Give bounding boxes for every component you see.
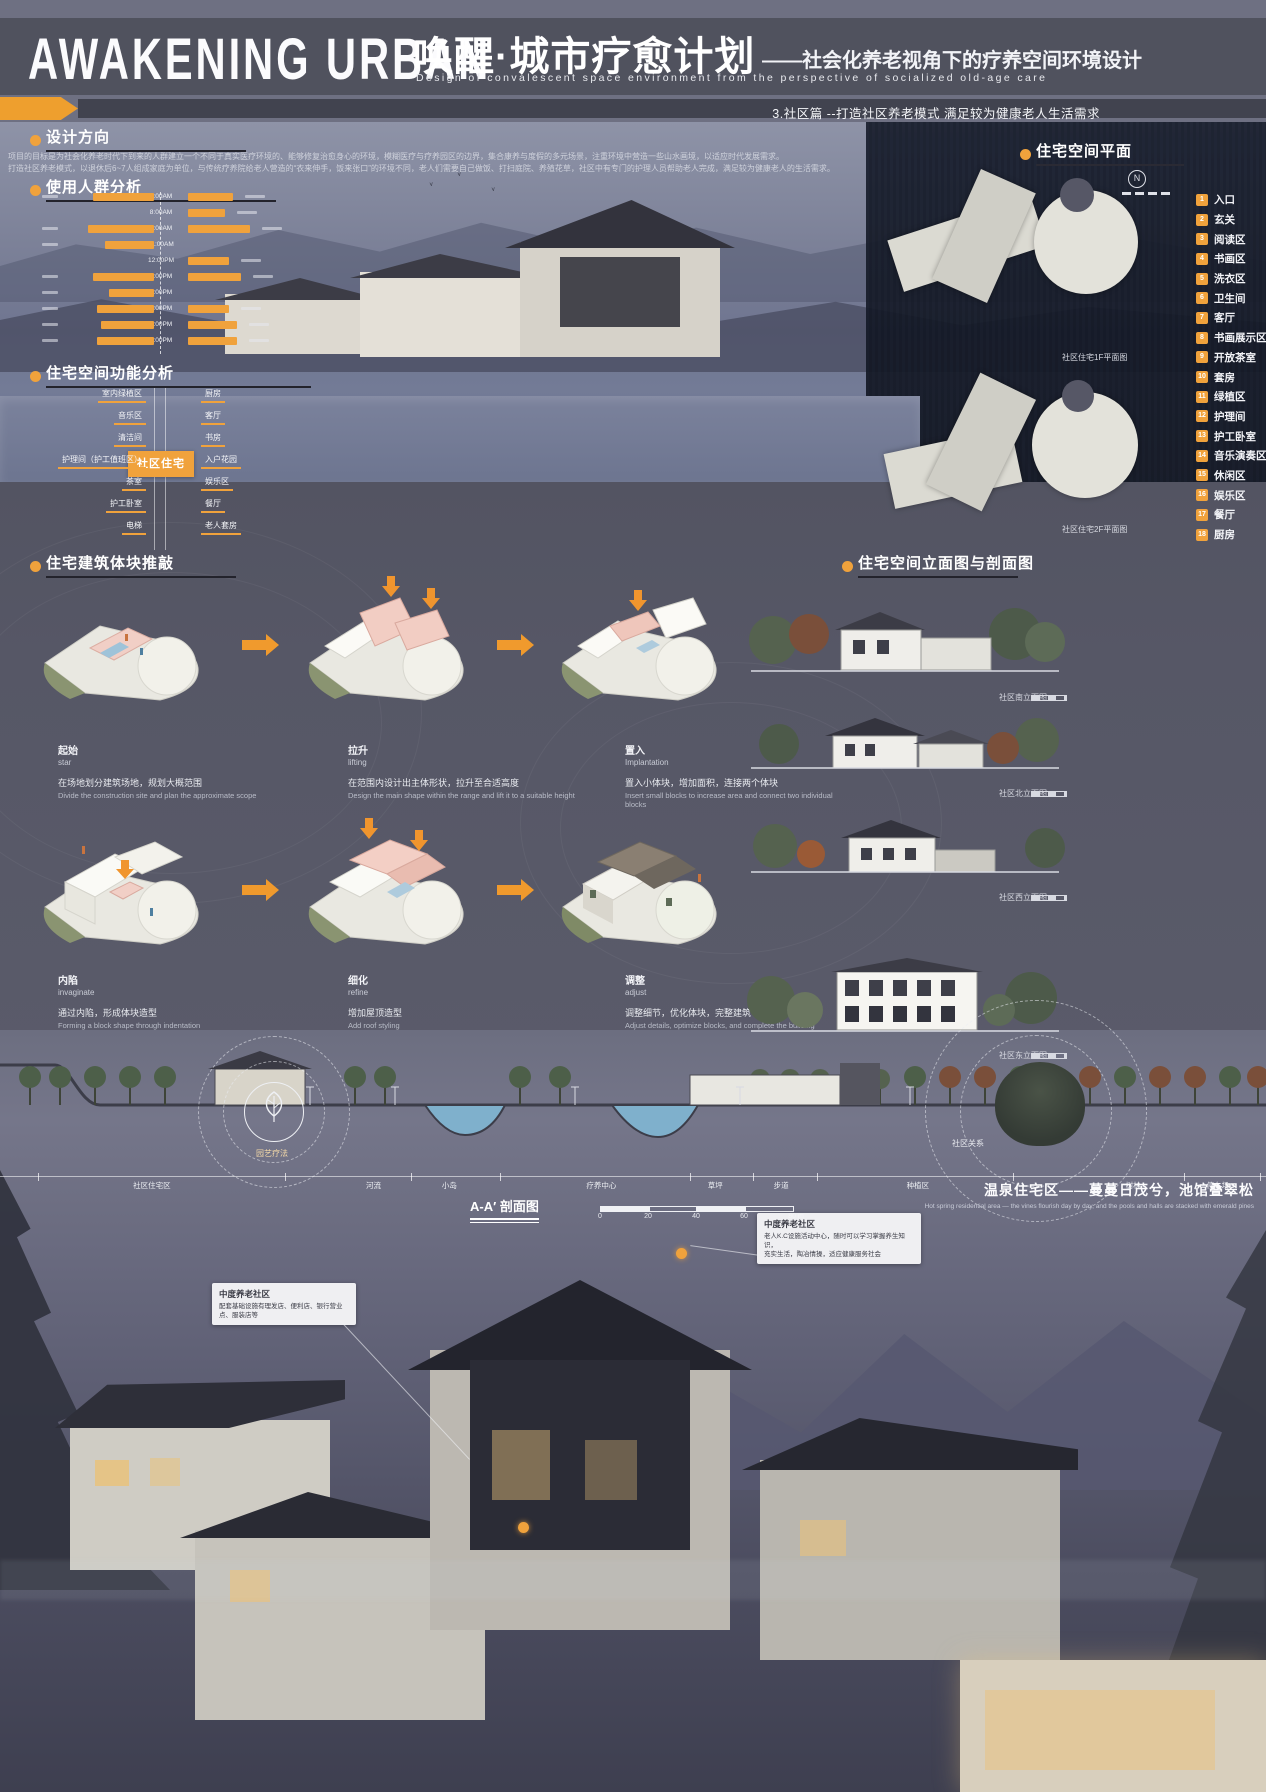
legend-label: 阅读区	[1214, 232, 1246, 247]
label-dash	[42, 323, 58, 326]
massing-step-4-label: 内陷 invaginate 通过内陷，形成体块造型 Forming a bloc…	[58, 972, 288, 1030]
legend-item: 2玄关	[1196, 210, 1262, 230]
legend-item: 6卫生间	[1196, 288, 1262, 308]
function-left-item: 茶室	[122, 476, 146, 491]
legend-number: 13	[1196, 430, 1208, 442]
schedule-row: 2:00PM	[36, 272, 288, 282]
step-desc-zh: 通过内陷，形成体块造型	[58, 1006, 288, 1019]
section-title: 住宅空间平面	[1036, 140, 1184, 161]
activity-bar-right	[188, 321, 237, 329]
dusk-rendering-scene	[0, 1230, 1266, 1792]
legend-number: 8	[1196, 332, 1208, 344]
legend-number: 18	[1196, 529, 1208, 541]
step-name-zh: 细化	[348, 972, 578, 987]
mist-band	[0, 1560, 1266, 1600]
legend-item: 14音乐演奏区	[1196, 446, 1262, 466]
section-aa-title: A-A′ 剖面图	[470, 1196, 539, 1223]
section-design-direction: 设计方向	[46, 126, 246, 152]
plan-notch	[1062, 380, 1094, 412]
activity-bar-left	[97, 337, 154, 345]
header-band: AWAKENING URBAN 唤醒·城市疗愈计划 ——社会化养老视角下的疗养空…	[0, 18, 1266, 95]
legend-number: 12	[1196, 410, 1208, 422]
hot-spring-title-zh: 温泉住宅区——蔓蔓日茂兮，池馆叠翠松	[925, 1180, 1254, 1200]
function-right-item: 书房	[201, 432, 225, 447]
schedule-row: 7:00PM	[36, 320, 288, 330]
step-name-en: lifting	[348, 758, 578, 767]
massing-step-6-diagram	[548, 812, 753, 977]
top-margin-band	[0, 0, 1266, 18]
activity-bar-left	[97, 305, 154, 313]
section-title: 住宅空间立面图与剖面图	[858, 552, 1034, 573]
legend-item: 12护理间	[1196, 407, 1262, 427]
function-right-item: 餐厅	[201, 498, 225, 513]
poster-root: ᵛᵛᵛ AWAKENING URBAN	[0, 0, 1266, 1792]
legend-item: 5洗衣区	[1196, 269, 1262, 289]
step-name-zh: 起始	[58, 742, 288, 757]
section-elevations: 住宅空间立面图与剖面图	[858, 552, 1034, 578]
activity-bar-right	[188, 225, 250, 233]
function-right-item: 娱乐区	[201, 476, 233, 491]
time-label: 12:00PM	[138, 257, 184, 264]
step-desc-zh: 增加屋顶造型	[348, 1006, 578, 1019]
legend-label: 音乐演奏区	[1214, 448, 1266, 463]
massing-step-5-diagram	[295, 812, 500, 977]
legend-number: 3	[1196, 233, 1208, 245]
elevation-west: 社区西立面图	[745, 804, 1065, 890]
callout-box-2: 中度养老社区 配套基础设施有理发店、便利店、银行营业点、服装店等	[212, 1283, 356, 1325]
callout-title: 中度养老社区	[764, 1218, 914, 1230]
design-direction-body-1: 项目的目标是为社会化养老时代下到来的人群建立一个不同于真实医疗环境的、能够修复治…	[8, 151, 1128, 162]
zone-label: 河流	[366, 1180, 381, 1191]
legend-number: 10	[1196, 371, 1208, 383]
arrow-right-icon	[497, 885, 521, 895]
main-house-roof	[408, 1280, 752, 1370]
schedule-row: 9:00AM	[36, 224, 288, 234]
function-left-item: 室内绿植区	[98, 388, 146, 403]
label-dash	[241, 307, 261, 310]
legend-number: 5	[1196, 273, 1208, 285]
legend-number: 1	[1196, 194, 1208, 206]
legend-item: 13护工卧室	[1196, 426, 1262, 446]
legend-item: 9开放茶室	[1196, 348, 1262, 368]
callout-box-1: 中度养老社区 老人K.C设施活动中心，随时可以学习掌握养生知识， 充实生活，陶冶…	[757, 1213, 921, 1264]
legend-item: 18厨房	[1196, 525, 1262, 545]
step-name-en: refine	[348, 988, 578, 997]
legend-label: 开放茶室	[1214, 350, 1256, 365]
legend-label: 书画区	[1214, 251, 1246, 266]
floor-plan-1f	[884, 168, 1184, 318]
step-name-zh: 拉升	[348, 742, 578, 757]
step-desc-en: Divide the construction site and plan th…	[58, 791, 288, 800]
activity-bar-left	[93, 273, 155, 281]
legend-label: 娱乐区	[1214, 488, 1246, 503]
label-dash	[249, 323, 269, 326]
activity-bar-left	[105, 241, 154, 249]
arrow-right-icon	[497, 640, 521, 650]
legend-item: 16娱乐区	[1196, 485, 1262, 505]
activity-bar-left	[109, 289, 154, 297]
schedule-row: 11:00AM	[36, 240, 288, 250]
activity-bar-left	[101, 321, 154, 329]
massing-step-3-diagram	[548, 568, 753, 733]
activity-bar-right	[188, 257, 229, 265]
function-left-item: 清洁间	[114, 432, 146, 447]
zone-label: 草坪	[708, 1180, 723, 1191]
activity-bar-right	[188, 193, 233, 201]
legend-label: 玄关	[1214, 212, 1235, 227]
legend-item: 3阅读区	[1196, 229, 1262, 249]
massing-step-1-diagram	[30, 568, 235, 733]
hot-spring-title: 温泉住宅区——蔓蔓日茂兮，池馆叠翠松 Hot spring residentia…	[925, 1180, 1254, 1210]
legend-label: 休闲区	[1214, 468, 1246, 483]
function-left-item: 电梯	[122, 520, 146, 535]
zone-tick	[411, 1173, 412, 1181]
schedule-row: 6:00PM	[36, 304, 288, 314]
elevation-south: 社区南立面图	[745, 578, 1065, 690]
step-desc-zh: 在场地划分建筑场地，规划大概范围	[58, 776, 288, 789]
marker-dot	[518, 1522, 529, 1533]
time-label: 8:00AM	[138, 209, 184, 216]
function-diagram: 社区住宅 室内绿植区音乐区清洁间护理间（护工值班区）茶室护工卧室电梯厨房客厅书房…	[36, 388, 286, 550]
step-name-en: invaginate	[58, 988, 288, 997]
legend-number: 2	[1196, 214, 1208, 226]
label-dash	[42, 275, 58, 278]
function-right-item: 客厅	[201, 410, 225, 425]
step-desc-en: Add roof styling	[348, 1021, 578, 1030]
legend-item: 15休闲区	[1196, 466, 1262, 486]
bullet-dot-icon	[30, 371, 41, 382]
function-left-item: 护理间（护工值班区）	[58, 454, 146, 469]
scale-tick: 0	[598, 1213, 602, 1220]
massing-step-4-diagram	[30, 812, 235, 977]
activity-bar-right	[188, 209, 225, 217]
legend-item: 7客厅	[1196, 308, 1262, 328]
legend-label: 套房	[1214, 370, 1235, 385]
label-dash	[249, 339, 269, 342]
zone-tick	[38, 1173, 39, 1181]
label-dash	[253, 275, 273, 278]
leaf-icon	[261, 1090, 287, 1124]
arrow-right-icon	[242, 640, 266, 650]
activity-bar-right	[188, 273, 241, 281]
label-dash	[42, 339, 58, 342]
activity-bar-left	[88, 225, 154, 233]
section-tag-text: 3.社区篇 --打造社区养老模式 满足较为健康老人生活需求	[772, 103, 1100, 122]
section-tag-bar: 3.社区篇 --打造社区养老模式 满足较为健康老人生活需求	[0, 95, 1266, 122]
legend-label: 客厅	[1214, 310, 1235, 325]
plan-notch	[1060, 178, 1094, 212]
schedule-row: 12:00PM	[36, 256, 288, 266]
bullet-dot-icon	[30, 135, 41, 146]
zone-label: 小岛	[442, 1180, 457, 1191]
rendering-glass-gable	[560, 257, 680, 327]
legend-number: 14	[1196, 450, 1208, 462]
accent-chevron	[0, 97, 78, 120]
function-right-item: 老人套房	[201, 520, 241, 535]
schedule-row: 7:00AM	[36, 192, 288, 202]
legend-number: 4	[1196, 253, 1208, 265]
activity-bar-right	[188, 305, 229, 313]
marker-dot	[676, 1248, 687, 1259]
plan-legend: 1入口2玄关3阅读区4书画区5洗衣区6卫生间7客厅8书画展示区9开放茶室10套房…	[1196, 190, 1262, 544]
step-desc-en: Design the main shape within the range a…	[348, 791, 578, 800]
legend-item: 10套房	[1196, 367, 1262, 387]
zone-label: 社区住宅区	[133, 1180, 171, 1191]
page-subtitle-zh: ——社会化养老视角下的疗养空间环境设计	[762, 44, 1142, 73]
schedule-row: 4:00PM	[36, 288, 288, 298]
legend-label: 卫生间	[1214, 291, 1246, 306]
label-dash	[42, 291, 58, 294]
activity-bar-right	[188, 337, 237, 345]
step-desc-zh: 在范围内设计出主体形状，拉升至合适高度	[348, 776, 578, 789]
legend-number: 9	[1196, 351, 1208, 363]
legend-number: 6	[1196, 292, 1208, 304]
arrow-right-icon	[242, 885, 266, 895]
function-right-item: 入户花园	[201, 454, 241, 469]
function-left-item: 音乐区	[114, 410, 146, 425]
function-left-item: 护工卧室	[106, 498, 146, 513]
massing-step-2-label: 拉升 lifting 在范围内设计出主体形状，拉升至合适高度 Design th…	[348, 742, 578, 800]
massing-step-5-label: 细化 refine 增加屋顶造型 Add roof styling	[348, 972, 578, 1030]
legend-item: 11绿植区	[1196, 387, 1262, 407]
scale-bar-icon	[1031, 895, 1067, 901]
section-aa-text: A-A′ 剖面图	[470, 1196, 539, 1215]
section-plan: 住宅空间平面	[1036, 140, 1184, 166]
legend-label: 餐厅	[1214, 507, 1235, 522]
legend-item: 4书画区	[1196, 249, 1262, 269]
garden-therapy-emblem	[244, 1082, 304, 1142]
legend-label: 书画展示区	[1214, 330, 1266, 345]
label-dash	[42, 243, 58, 246]
label-dash	[241, 259, 261, 262]
plan-caption-1f: 社区住宅1F平面图	[1062, 352, 1127, 363]
section-function-analysis: 住宅空间功能分析	[46, 362, 311, 388]
elevation-caption: 社区西立面图	[999, 892, 1047, 903]
label-dash	[245, 195, 265, 198]
emblem-label: 园艺疗法	[256, 1148, 288, 1159]
tree-photo-blob	[995, 1062, 1085, 1146]
label-dash	[42, 195, 58, 198]
zone-tick	[817, 1173, 818, 1181]
label-dash	[42, 307, 58, 310]
callout-line: 老人K.C设施活动中心，随时可以学习掌握养生知识，	[764, 1232, 914, 1250]
scale-tick: 20	[644, 1213, 652, 1220]
bullet-dot-icon	[1020, 149, 1031, 160]
hot-spring-title-en: Hot spring residential area — the vines …	[925, 1203, 1254, 1210]
scale-tick: 60	[740, 1213, 748, 1220]
legend-label: 厨房	[1214, 527, 1235, 542]
legend-number: 16	[1196, 489, 1208, 501]
activity-bar-left	[93, 193, 155, 201]
community-circle-label: 社区关系	[952, 1138, 984, 1149]
legend-number: 7	[1196, 312, 1208, 324]
legend-label: 绿植区	[1214, 389, 1246, 404]
zone-tick	[1260, 1173, 1261, 1181]
legend-number: 15	[1196, 469, 1208, 481]
massing-step-2-diagram	[295, 568, 500, 733]
daily-schedule-chart: 7:00AM8:00AM9:00AM11:00AM12:00PM2:00PM4:…	[36, 192, 288, 354]
floor-plan-2f	[884, 378, 1184, 518]
legend-number: 11	[1196, 391, 1208, 403]
legend-label: 洗衣区	[1214, 271, 1246, 286]
legend-item: 17餐厅	[1196, 505, 1262, 525]
callout-line: 配套基础设施有理发店、便利店、银行营业点、服装店等	[219, 1302, 349, 1320]
rendering-building	[360, 272, 540, 357]
rendering-roof	[505, 200, 735, 248]
label-dash	[42, 227, 58, 230]
callout-title: 中度养老社区	[219, 1288, 349, 1300]
scale-bar-icon	[1031, 791, 1067, 797]
legend-item: 8书画展示区	[1196, 328, 1262, 348]
label-dash	[262, 227, 282, 230]
legend-number: 17	[1196, 509, 1208, 521]
section-title: 设计方向	[46, 126, 246, 147]
step-desc-en: Forming a block shape through indentatio…	[58, 1021, 288, 1030]
zone-tick	[690, 1173, 691, 1181]
legend-label: 护工卧室	[1214, 429, 1256, 444]
step-name-zh: 内陷	[58, 972, 288, 987]
zone-label: 步道	[774, 1180, 789, 1191]
zone-tick	[500, 1173, 501, 1181]
scale-tick: 40	[692, 1213, 700, 1220]
schedule-row: 8:00AM	[36, 208, 288, 218]
legend-item: 1入口	[1196, 190, 1262, 210]
plan-caption-2f: 社区住宅2F平面图	[1062, 524, 1127, 535]
elevation-north: 社区北立面图	[745, 700, 1065, 786]
legend-label: 入口	[1214, 192, 1235, 207]
elevation-caption: 社区北立面图	[999, 788, 1047, 799]
page-subtitle-en: Design of convalescent space environment…	[416, 72, 1047, 84]
massing-step-1-label: 起始 star 在场地划分建筑场地，规划大概范围 Divide the cons…	[58, 742, 288, 800]
function-right-item: 厨房	[201, 388, 225, 403]
section-title: 住宅空间功能分析	[46, 362, 311, 383]
callout-line: 充实生活，陶冶情操，适应健康服务社会	[764, 1250, 914, 1259]
step-name-en: star	[58, 758, 288, 767]
bullet-dot-icon	[842, 561, 853, 572]
schedule-row: 9:00PM	[36, 336, 288, 346]
label-dash	[237, 211, 257, 214]
zone-label: 疗养中心	[586, 1180, 616, 1191]
zone-tick	[753, 1173, 754, 1181]
legend-label: 护理间	[1214, 409, 1246, 424]
